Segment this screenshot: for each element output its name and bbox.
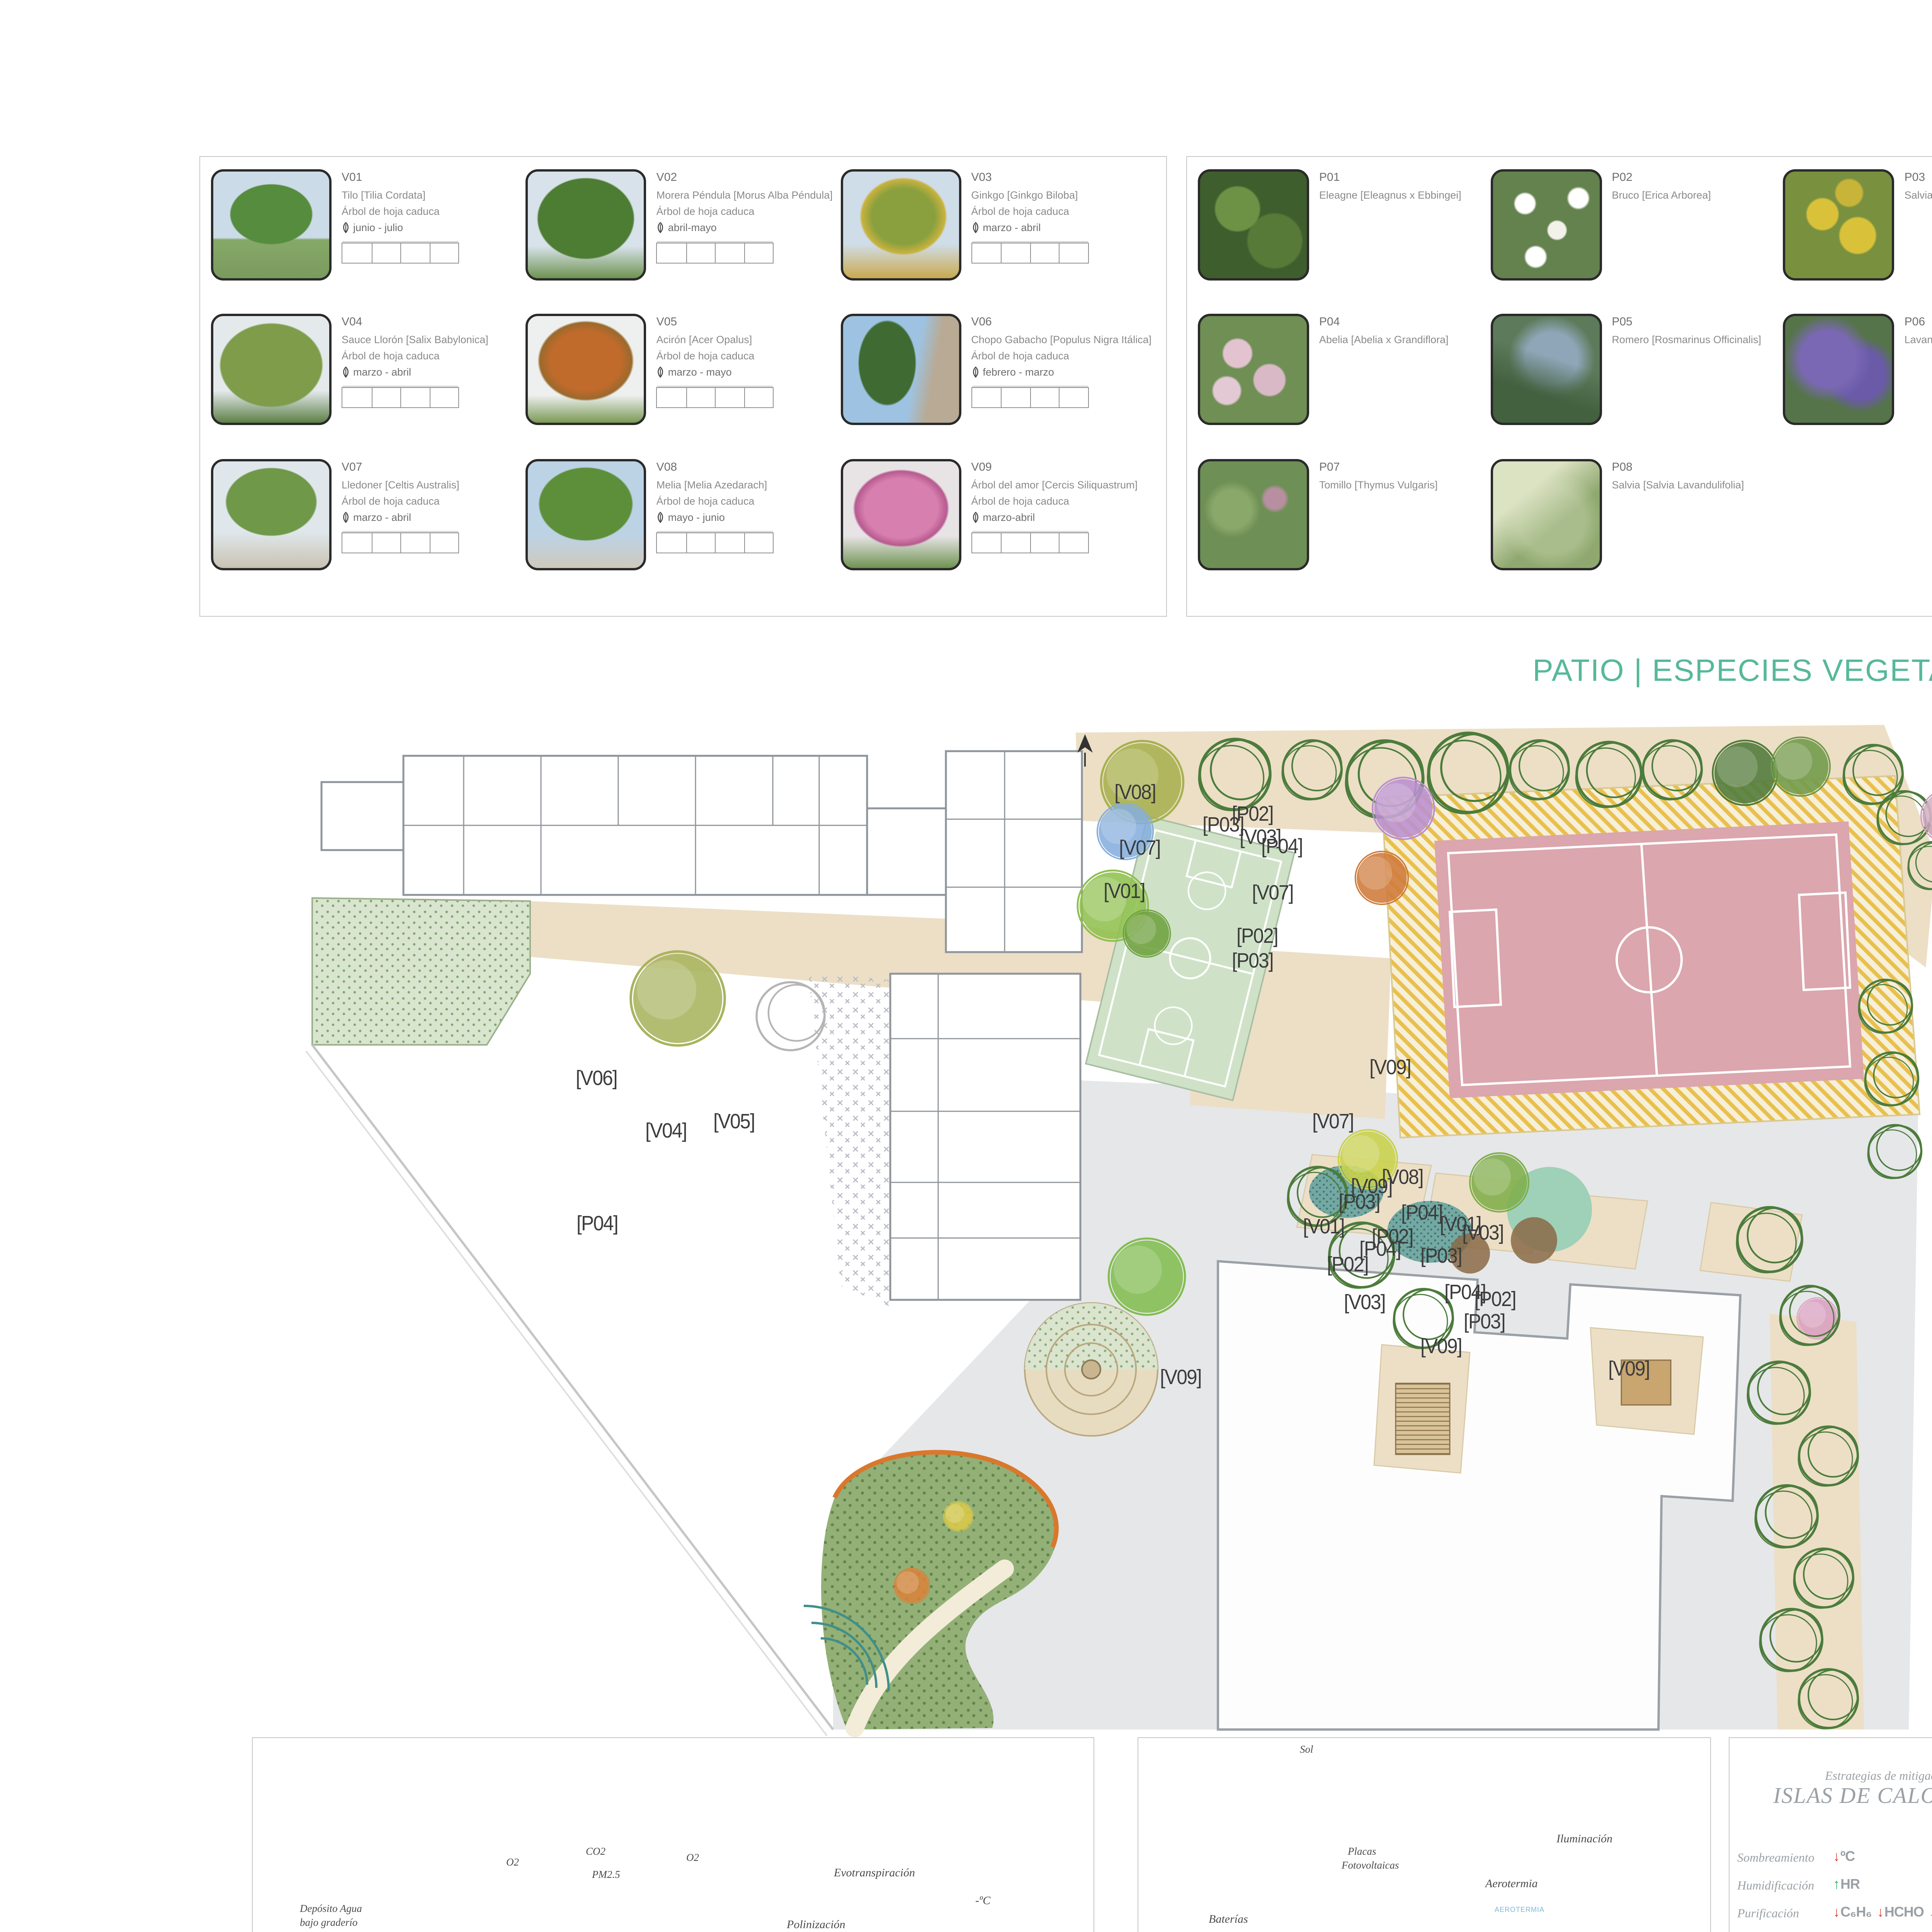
- species-type: Árbol de hoja caduca: [971, 206, 1088, 218]
- tree-species-panel: V01 Tilo [Tilia Cordata] Árbol de hoja c…: [199, 156, 1167, 617]
- species-photo: [211, 459, 332, 570]
- species-code: V01: [342, 171, 459, 184]
- species-photo: [211, 314, 332, 425]
- plan-label: [V09]: [1608, 1357, 1650, 1381]
- species-card-p04: P04 Abelia [Abelia x Grandiflora]: [1198, 314, 1490, 459]
- species-type: Árbol de hoja caduca: [971, 350, 1151, 363]
- eco-section-panel: [252, 1737, 1094, 1932]
- leaf-icon: [971, 511, 980, 523]
- species-card-v04: V04 Sauce Llorón [Salix Babylonica] Árbo…: [211, 314, 526, 459]
- leaf-icon: [656, 222, 665, 233]
- species-card-p08: P08 Salvia [Salvia Lavandulifolia]: [1490, 459, 1783, 604]
- species-code: P05: [1612, 316, 1761, 329]
- calendar-strip: [342, 532, 459, 553]
- bloom-period: abril-mayo: [668, 222, 717, 233]
- bloom-period: mayo - junio: [668, 511, 725, 523]
- legend-row: Sombreamiento ºC: [1737, 1849, 1932, 1869]
- plan-label: [V01]: [1104, 879, 1145, 903]
- species-photo: [1198, 169, 1309, 281]
- heat-island-legend-panel: [1729, 1737, 1932, 1932]
- species-card-p07: P07 Tomillo [Thymus Vulgaris]: [1198, 459, 1490, 604]
- eco-label: Polinización: [787, 1919, 845, 1932]
- species-name: Lledoner [Celtis Australis]: [342, 479, 459, 491]
- building-extension: [890, 974, 1080, 1300]
- species-card-v09: V09 Árbol del amor [Cercis Siliquastrum]…: [840, 459, 1155, 604]
- species-photo: [1198, 459, 1309, 570]
- leaf-icon: [971, 222, 980, 233]
- species-name: Salvia [Salvia Lavandulifolia]: [1612, 479, 1744, 491]
- species-code: V05: [656, 316, 774, 329]
- plan-label: [V07]: [1312, 1110, 1354, 1134]
- calendar-strip: [656, 243, 774, 264]
- species-photo: [840, 459, 961, 570]
- leaf-icon: [656, 367, 665, 378]
- species-card-p05: P05 Romero [Rosmarinus Officinalis]: [1490, 314, 1783, 459]
- species-code: V06: [971, 316, 1151, 329]
- species-code: P08: [1612, 460, 1744, 473]
- species-name: Morera Péndula [Morus Alba Péndula]: [656, 189, 833, 202]
- presentation-board: V01 Tilo [Tilia Cordata] Árbol de hoja c…: [0, 0, 1932, 1932]
- species-type: Árbol de hoja caduca: [656, 206, 833, 218]
- eco-label: -ºC: [975, 1895, 990, 1908]
- leaf-icon: [342, 367, 350, 378]
- species-code: V04: [342, 316, 488, 329]
- species-name: Tilo [Tilia Cordata]: [342, 189, 459, 202]
- species-type: Árbol de hoja caduca: [656, 495, 774, 507]
- species-code: P06: [1905, 316, 1932, 329]
- species-name: Sauce Llorón [Salix Babylonica]: [342, 334, 488, 347]
- species-code: V02: [656, 171, 833, 184]
- energy-label: Placas: [1348, 1845, 1376, 1858]
- calendar-strip: [971, 532, 1088, 553]
- species-name: Acirón [Acer Opalus]: [656, 334, 774, 347]
- species-photo: [840, 169, 961, 281]
- plan-label: [V09]: [1160, 1366, 1201, 1389]
- leaf-icon: [342, 511, 350, 523]
- legend-row-label: Humidificación: [1737, 1879, 1814, 1893]
- species-name: Tomillo [Thymus Vulgaris]: [1319, 479, 1438, 491]
- species-code: V08: [656, 460, 774, 473]
- species-code: P04: [1319, 316, 1449, 329]
- plan-label: [V08]: [1114, 781, 1156, 804]
- plan-label: [V07]: [1252, 881, 1293, 905]
- species-photo: [1490, 169, 1602, 281]
- species-name: Chopo Gabacho [Populus Nigra Itálica]: [971, 334, 1151, 347]
- species-name: Eleagne [Eleagnus x Ebbingei]: [1319, 189, 1461, 202]
- legend-value: ºC: [1833, 1849, 1855, 1864]
- legend-value: HCHO: [1877, 1904, 1924, 1920]
- species-code: P02: [1612, 171, 1711, 184]
- sports-field: [1382, 776, 1920, 1138]
- plan-label: [V01]: [1303, 1215, 1344, 1239]
- plan-label: [V04]: [645, 1119, 687, 1143]
- species-name: Melia [Melia Azedarach]: [656, 479, 774, 491]
- eco-label: bajo graderío: [300, 1917, 357, 1929]
- bloom-period: junio - julio: [353, 222, 403, 233]
- plan-label: [V06]: [576, 1066, 617, 1090]
- species-card-p01: P01 Eleagne [Eleagnus x Ebbingei]: [1198, 169, 1490, 314]
- plan-label: [V09]: [1369, 1056, 1411, 1080]
- species-section-title: PATIO | ESPECIES VEGETALES: [1532, 654, 1932, 689]
- legend-row-label: Sombreamiento: [1737, 1852, 1815, 1866]
- shrub-species-panel: P01 Eleagne [Eleagnus x Ebbingei] P02 Br…: [1186, 156, 1932, 617]
- plan-label: [V07]: [1119, 836, 1160, 860]
- species-name: Lavanda [Lavandula Angustifolia]: [1905, 334, 1932, 347]
- plan-label: [P02]: [1327, 1253, 1368, 1277]
- calendar-strip: [342, 388, 459, 408]
- plan-label: [P04]: [577, 1212, 618, 1236]
- species-type: Árbol de hoja caduca: [342, 495, 459, 507]
- bloom-period: marzo - abril: [353, 511, 411, 523]
- bloom-period: marzo - abril: [983, 222, 1041, 233]
- species-code: P03: [1905, 171, 1932, 184]
- species-card-v02: V02 Morera Péndula [Morus Alba Péndula] …: [526, 169, 841, 314]
- energy-label: Baterías: [1209, 1913, 1248, 1927]
- bloom-period: febrero - marzo: [983, 367, 1054, 378]
- plan-label: [P03]: [1232, 949, 1273, 973]
- eco-label: Evotranspiración: [834, 1867, 915, 1880]
- plan-label: [V05]: [713, 1110, 755, 1134]
- legend-title: ISLAS DE CALOR: [1773, 1784, 1932, 1809]
- species-card-v03: V03 Ginkgo [Ginkgo Biloba] Árbol de hoja…: [840, 169, 1155, 314]
- species-type: Árbol de hoja caduca: [342, 206, 459, 218]
- species-code: V03: [971, 171, 1088, 184]
- species-name: Salvia [Phlomis Fructicosa]: [1905, 189, 1932, 202]
- energy-label: Fotovoltaicas: [1342, 1859, 1399, 1872]
- grandstand: [1396, 1383, 1450, 1454]
- calendar-strip: [971, 388, 1088, 408]
- plan-label: [V03]: [1462, 1221, 1503, 1245]
- species-photo: [840, 314, 961, 425]
- legend-row-label: Purificación: [1737, 1907, 1799, 1921]
- species-name: Romero [Rosmarinus Officinalis]: [1612, 334, 1761, 347]
- amphitheater: [1025, 1303, 1158, 1436]
- plan-label: [P02]: [1475, 1287, 1516, 1311]
- calendar-strip: [656, 532, 774, 553]
- eco-label: O2: [506, 1856, 519, 1869]
- eco-label: Depósito Agua: [300, 1903, 362, 1915]
- species-card-v05: V05 Acirón [Acer Opalus] Árbol de hoja c…: [526, 314, 841, 459]
- eco-label: PM2.5: [592, 1869, 620, 1881]
- plan-label: [V03]: [1344, 1291, 1385, 1315]
- leaf-icon: [342, 222, 350, 233]
- legend-row: Purificación C₆H₆HCHOTCE: [1737, 1904, 1932, 1924]
- species-photo: [1490, 314, 1602, 425]
- species-name: Ginkgo [Ginkgo Biloba]: [971, 189, 1088, 202]
- species-card-v01: V01 Tilo [Tilia Cordata] Árbol de hoja c…: [211, 169, 526, 314]
- species-photo: [1198, 314, 1309, 425]
- plan-label: [V09]: [1420, 1335, 1462, 1359]
- plan-label: [V08]: [1382, 1165, 1423, 1189]
- species-photo: [211, 169, 332, 281]
- eco-label: CO2: [586, 1845, 605, 1858]
- species-type: Árbol de hoja caduca: [342, 350, 488, 363]
- species-type: Árbol de hoja caduca: [971, 495, 1138, 507]
- species-card-p03: P03 Salvia [Phlomis Fructicosa]: [1783, 169, 1932, 314]
- species-name: Bruco [Erica Arborea]: [1612, 189, 1711, 202]
- plan-label: [P02]: [1236, 924, 1278, 948]
- legend-subtitle: Estrategias de mitigación: [1825, 1770, 1932, 1784]
- leaf-icon: [971, 367, 980, 378]
- species-photo: [1490, 459, 1602, 570]
- species-card-p06: P06 Lavanda [Lavandula Angustifolia]: [1783, 314, 1932, 459]
- species-photo: [526, 314, 646, 425]
- species-card-p02: P02 Bruco [Erica Arborea]: [1490, 169, 1783, 314]
- species-card-v06: V06 Chopo Gabacho [Populus Nigra Itálica…: [840, 314, 1155, 459]
- species-photo: [526, 169, 646, 281]
- bloom-period: marzo-abril: [983, 511, 1035, 523]
- legend-value: HR: [1833, 1876, 1860, 1892]
- energy-label: Sol: [1300, 1743, 1313, 1756]
- plan-label: [P04]: [1261, 835, 1303, 859]
- plan-label: [P03]: [1338, 1190, 1380, 1214]
- energy-label: Aerotermia: [1485, 1878, 1538, 1891]
- species-card-v08: V08 Melia [Melia Azedarach] Árbol de hoj…: [526, 459, 841, 604]
- energy-label: Iluminación: [1556, 1833, 1612, 1846]
- species-code: P01: [1319, 171, 1461, 184]
- species-type: Árbol de hoja caduca: [656, 350, 774, 363]
- species-name: Árbol del amor [Cercis Siliquastrum]: [971, 479, 1138, 491]
- species-name: Abelia [Abelia x Grandiflora]: [1319, 334, 1449, 347]
- species-photo: [1783, 169, 1895, 281]
- energy-section-panel: [1138, 1737, 1711, 1932]
- species-code: P07: [1319, 460, 1438, 473]
- plan-label: [P02]: [1232, 802, 1273, 826]
- legend-value: TCE: [1929, 1904, 1932, 1920]
- leaf-icon: [656, 511, 665, 523]
- species-photo: [1783, 314, 1895, 425]
- plan-label: [P03]: [1464, 1310, 1505, 1334]
- calendar-strip: [656, 388, 774, 408]
- species-code: V07: [342, 460, 459, 473]
- legend-row: Humidificación HR: [1737, 1876, 1932, 1896]
- aerotermia-unit-label: AEROTERMIA: [1495, 1906, 1544, 1913]
- bloom-period: marzo - mayo: [668, 367, 732, 378]
- eco-label: O2: [686, 1852, 699, 1864]
- calendar-strip: [971, 243, 1088, 264]
- plan-label: [P03]: [1420, 1244, 1462, 1268]
- legend-value: C₆H₆: [1833, 1904, 1872, 1920]
- plan-label: [P04]: [1401, 1201, 1442, 1225]
- species-photo: [526, 459, 646, 570]
- species-card-v07: V07 Lledoner [Celtis Australis] Árbol de…: [211, 459, 526, 604]
- calendar-strip: [342, 243, 459, 264]
- bloom-period: marzo - abril: [353, 367, 411, 378]
- species-code: V09: [971, 460, 1138, 473]
